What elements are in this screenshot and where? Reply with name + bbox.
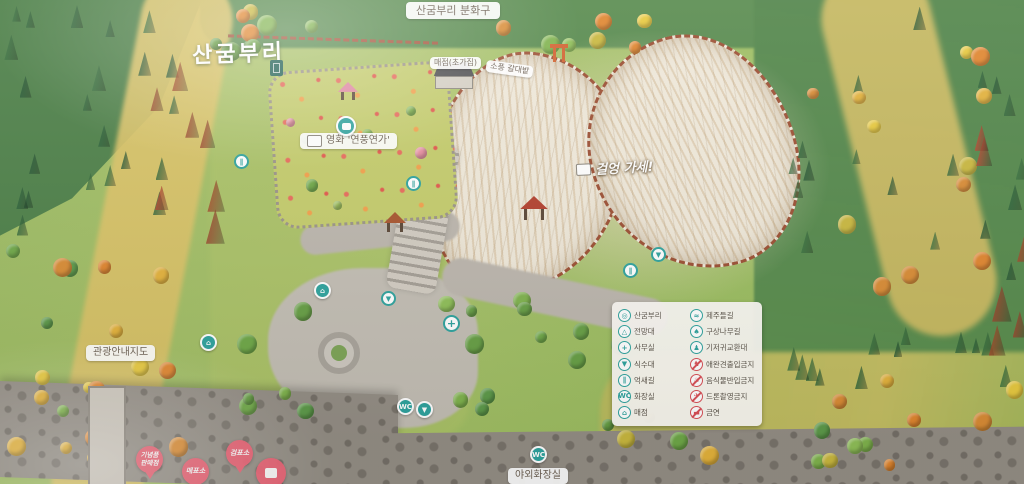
tree-icon: [257, 15, 277, 35]
tree-icon: [159, 362, 176, 379]
tree-icon: [475, 402, 489, 416]
legend-item-no-pets: ♞애완견출입금지: [690, 358, 756, 371]
silvergrass-trail-marker-icon: ∥: [234, 154, 249, 169]
fountain-marker-icon: ▼: [416, 401, 433, 418]
tree-icon: [57, 405, 69, 417]
no-pets-icon: ♞: [690, 358, 703, 371]
legend-item-crater: ◎산굼부리: [618, 309, 684, 322]
tree-icon: [306, 179, 318, 191]
tree-icon: [573, 323, 589, 339]
restroom-icon: WC: [618, 390, 631, 403]
tree-icon: [670, 432, 688, 450]
no-food-icon: ♨: [690, 374, 703, 387]
photo-spot-pin: [256, 458, 286, 484]
legend-item-fountain: ▼식수대: [618, 358, 684, 371]
office-icon: +: [618, 341, 631, 354]
entrance-gate-pillar: [88, 386, 126, 484]
tree-icon: [838, 215, 857, 234]
fountain-marker-icon: ▼: [381, 291, 396, 306]
ticket-icon: [265, 468, 277, 478]
outdoor-toilet-label: 야외화장실: [508, 468, 568, 484]
no-drone-icon: ✈: [690, 390, 703, 403]
legend-item-restroom: WC화장실: [618, 390, 684, 403]
camera-icon: [576, 163, 592, 176]
store-marker-icon: ⌂: [314, 282, 331, 299]
tree-icon: [822, 453, 837, 468]
legend-left-column: ◎산굼부리 △전망대 +사무실 ▼식수대 ∥억새길 WC화장실 ⌂매점: [618, 309, 684, 419]
tree-icon: [109, 324, 123, 338]
legend-item-no-food: ♨음식물반입금지: [690, 374, 756, 387]
legend-item-no-drone: ✈드론촬영금지: [690, 390, 756, 403]
tree-icon: [153, 267, 170, 284]
tree-icon: [41, 317, 54, 330]
tourist-map-label: 관광안내지도: [86, 345, 155, 361]
ticket-office-pin: 매표소: [182, 458, 209, 484]
pavilion-legs: [387, 223, 402, 232]
tree-icon: [415, 147, 427, 159]
red-pavilion: [520, 196, 548, 220]
tree-icon: [438, 296, 455, 313]
tree-icon: [6, 244, 20, 258]
tree-icon: [243, 393, 255, 405]
tree-icon: [465, 334, 485, 354]
fir-tree-trail-icon: ♠: [690, 325, 703, 338]
tree-icon: [595, 13, 612, 30]
small-pavilion: [384, 212, 406, 232]
office-marker-icon: +: [443, 315, 460, 332]
pavilion-legs: [341, 92, 355, 100]
restroom-marker-icon: WC: [397, 398, 414, 415]
tree-icon: [568, 351, 586, 369]
tree-icon: [406, 106, 416, 116]
drinking-fountain-icon: ▼: [618, 358, 631, 371]
crater-script-label: 걸엉 가세!: [576, 156, 654, 179]
legend-item-fir-trail: ♠구상나무길: [690, 325, 756, 338]
observatory-icon: △: [618, 325, 631, 338]
map-legend: ◎산굼부리 △전망대 +사무실 ▼식수대 ∥억새길 WC화장실 ⌂매점 ≈제주들…: [612, 302, 762, 426]
tree-icon: [637, 14, 651, 28]
legend-item-diaper: ♟기저귀교환대: [690, 341, 756, 354]
tree-icon: [453, 392, 468, 407]
crater-icon: ◎: [618, 309, 631, 322]
tree-icon: [852, 91, 865, 104]
store-marker-icon: ⌂: [200, 334, 217, 351]
tree-icon: [237, 334, 257, 354]
tree-icon: [814, 422, 830, 438]
pavilion-legs: [524, 209, 544, 220]
tree-icon: [700, 446, 719, 465]
shop-building-label: 매점(초가집): [430, 57, 481, 69]
store-icon: ⌂: [618, 406, 631, 419]
tree-icon: [867, 120, 880, 133]
orange-gate: [550, 44, 568, 62]
legend-item-silvergrass: ∥억새길: [618, 374, 684, 387]
tree-icon: [1006, 381, 1023, 398]
tree-icon: [517, 302, 532, 317]
fountain-marker-icon: ▼: [651, 247, 666, 262]
banner-label: 산굼부리 분화구: [406, 2, 500, 19]
tree-icon: [901, 266, 919, 284]
silvergrass-trail-marker-icon: ∥: [623, 263, 638, 278]
park-map-sign: 산굼부리 분화구 산굼부리 영화 '연풍연가' 걸엉 가세! 매점(초가집) 소…: [0, 0, 1024, 484]
tree-icon: [279, 387, 291, 399]
silvergrass-trail-icon: ∥: [618, 374, 631, 387]
tree-icon: [971, 47, 990, 66]
tree-icon: [973, 252, 991, 270]
legend-right-column: ≈제주들길 ♠구상나무길 ♟기저귀교환대 ♞애완견출입금지 ♨음식물반입금지 ✈…: [690, 309, 756, 419]
tree-icon: [7, 437, 26, 456]
tree-icon: [236, 9, 250, 23]
tree-icon: [832, 394, 847, 409]
silvergrass-trail-marker-icon: ∥: [406, 176, 421, 191]
pavilion-roof: [338, 82, 358, 92]
tree-icon: [884, 459, 896, 471]
tree-icon: [333, 201, 341, 209]
photo-zone-icon: [336, 116, 356, 136]
diaper-station-icon: ♟: [690, 341, 703, 354]
tree-icon: [466, 305, 478, 317]
shop-wall: [435, 76, 473, 89]
legend-item-jeju-trail: ≈제주들길: [690, 309, 756, 322]
legend-item-store: ⌂매점: [618, 406, 684, 419]
circular-stone-monument: [318, 332, 360, 374]
gift-shop-pin: 기념품판매점: [136, 446, 163, 473]
no-smoking-icon: ▬: [690, 406, 703, 419]
tree-icon: [617, 430, 635, 448]
tree-icon: [907, 413, 920, 426]
clapperboard-icon: [307, 135, 322, 147]
legend-item-office: +사무실: [618, 341, 684, 354]
legend-item-observatory: △전망대: [618, 325, 684, 338]
pavilion-roof: [384, 212, 406, 223]
tree-icon: [807, 88, 819, 100]
tree-icon: [60, 442, 72, 454]
legend-item-no-smoking: ▬금연: [690, 406, 756, 419]
ticket-gate-pin: 검표소: [226, 440, 253, 467]
jeju-trail-icon: ≈: [690, 309, 703, 322]
seal-stamp-icon: [270, 60, 283, 76]
tree-icon: [959, 157, 977, 175]
pink-pavilion: [338, 82, 358, 100]
tree-icon: [294, 302, 312, 320]
tree-icon: [535, 331, 547, 343]
outdoor-toilet-icon: WC: [530, 446, 547, 463]
tree-icon: [496, 20, 512, 36]
pavilion-roof: [520, 196, 548, 209]
